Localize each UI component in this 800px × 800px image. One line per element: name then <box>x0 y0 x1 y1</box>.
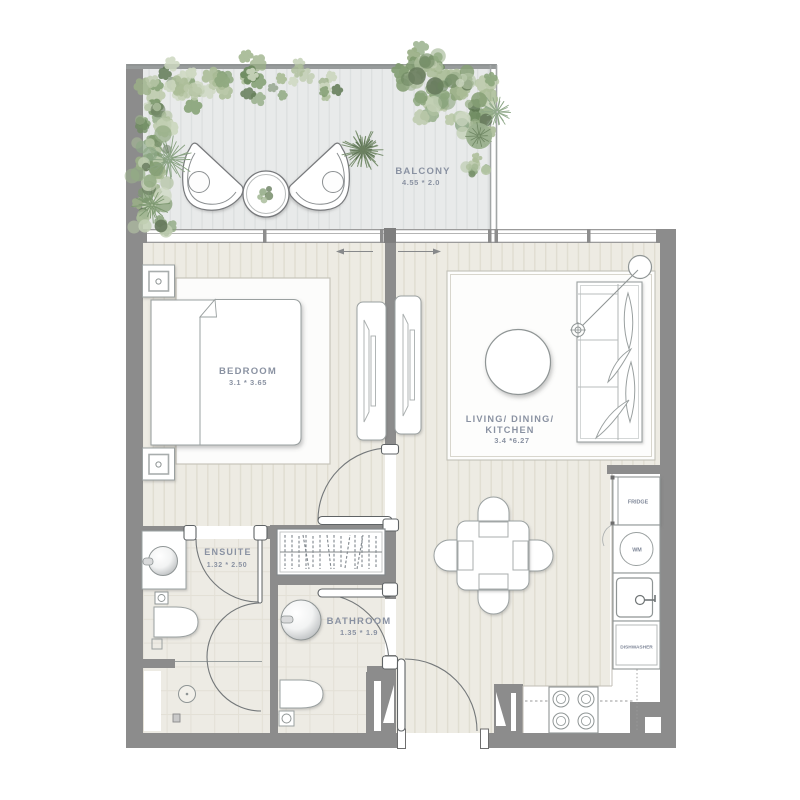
svg-text:BALCONY: BALCONY <box>395 166 450 177</box>
svg-text:LIVING/ DINING/: LIVING/ DINING/ <box>466 414 554 424</box>
svg-text:3.4 *6.27: 3.4 *6.27 <box>494 436 529 445</box>
svg-text:KITCHEN: KITCHEN <box>485 425 534 435</box>
svg-text:ENSUITE: ENSUITE <box>204 547 251 557</box>
svg-text:WM: WM <box>632 548 642 554</box>
svg-text:BEDROOM: BEDROOM <box>219 366 277 377</box>
svg-text:1.32 * 2.50: 1.32 * 2.50 <box>207 562 247 569</box>
svg-text:BATHROOM: BATHROOM <box>327 616 392 627</box>
svg-text:4.55 * 2.0: 4.55 * 2.0 <box>402 178 440 187</box>
svg-text:3.1 * 3.65: 3.1 * 3.65 <box>229 378 267 387</box>
svg-text:DISHWASHER: DISHWASHER <box>620 645 653 651</box>
svg-text:FRIDGE: FRIDGE <box>628 500 649 506</box>
svg-text:1.35 * 1.9: 1.35 * 1.9 <box>340 628 378 637</box>
